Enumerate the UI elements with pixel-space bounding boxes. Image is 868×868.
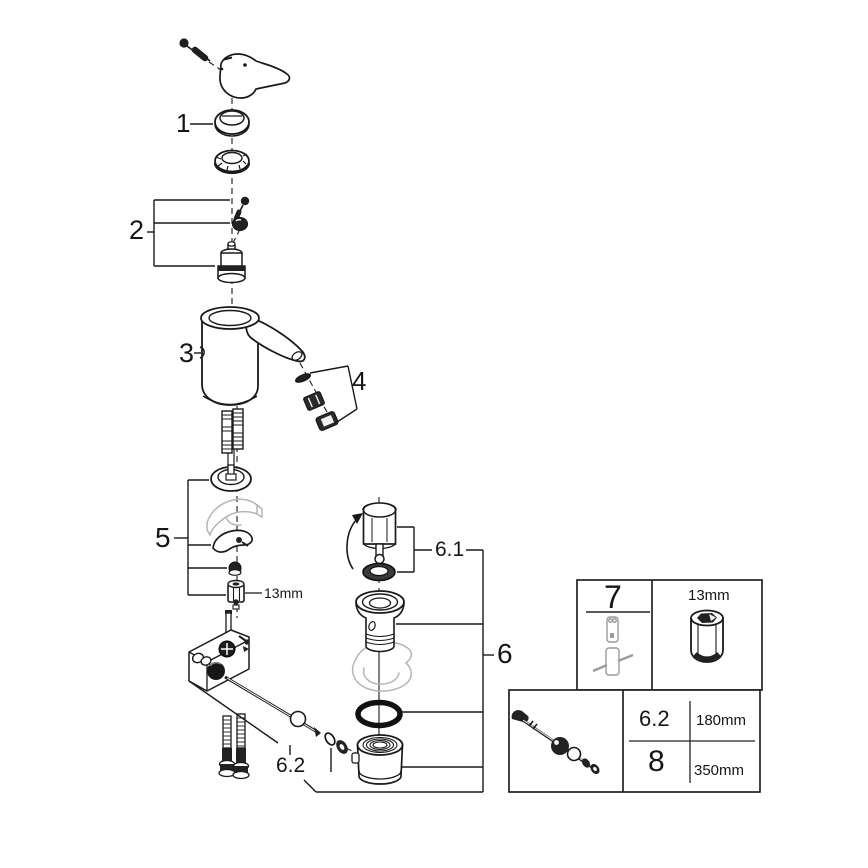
callout-4-label: 4 [352,368,366,394]
rod-row2-length-label: 350mm [694,763,744,778]
stabilizer-plate [213,530,252,552]
socket-13mm-drawing [691,611,723,663]
faucet-body-part3 [200,307,305,405]
callout-1-label: 1 [176,110,190,136]
callout-2-label: 2 [129,217,144,244]
plug-seal [363,564,395,581]
drain-body [352,735,403,784]
rotate-arrow [347,513,363,569]
exploded-diagram-drawing [0,0,868,868]
callout-2-bracket [147,200,230,266]
lever-handle [220,54,290,98]
rod-row1-ref-label: 6.2 [639,708,670,730]
handle-adapter [233,218,248,231]
popup-plug [363,503,396,564]
handle-screw [179,38,210,61]
drain-flange [356,591,404,652]
callout-5-label: 5 [155,524,171,552]
dome-nut [229,562,241,575]
callout-6-2-label: 6.2 [276,755,305,776]
cartridge-screw [236,197,249,219]
sink-deck-ghost [207,499,262,535]
callout-6-1-label: 6.1 [435,539,464,560]
supply-hoses [219,714,249,779]
mounting-studs [222,409,243,471]
callout-3-label: 3 [179,340,194,367]
hex-nut-13mm [228,581,244,603]
callout-6-label: 6 [497,640,513,668]
bearing-ring [215,151,249,174]
rod-row2-ref-label: 8 [648,747,665,777]
tool-ref-label: 7 [604,581,622,613]
exploded-diagram-page: 1 2 3 4 5 6 6.1 6.2 13mm 7 13mm 6.2 180m… [0,0,868,868]
cartridge-part2 [218,242,245,283]
cap-ring-part1 [215,110,249,136]
deck-nut-size-label: 13mm [264,586,303,600]
rod-row1-length-label: 180mm [696,713,746,728]
escutcheon-washer [211,465,251,491]
mounting-clamp-assembly [189,599,250,691]
socket-size-label: 13mm [688,588,730,603]
aerator-parts-part4 [294,372,339,431]
